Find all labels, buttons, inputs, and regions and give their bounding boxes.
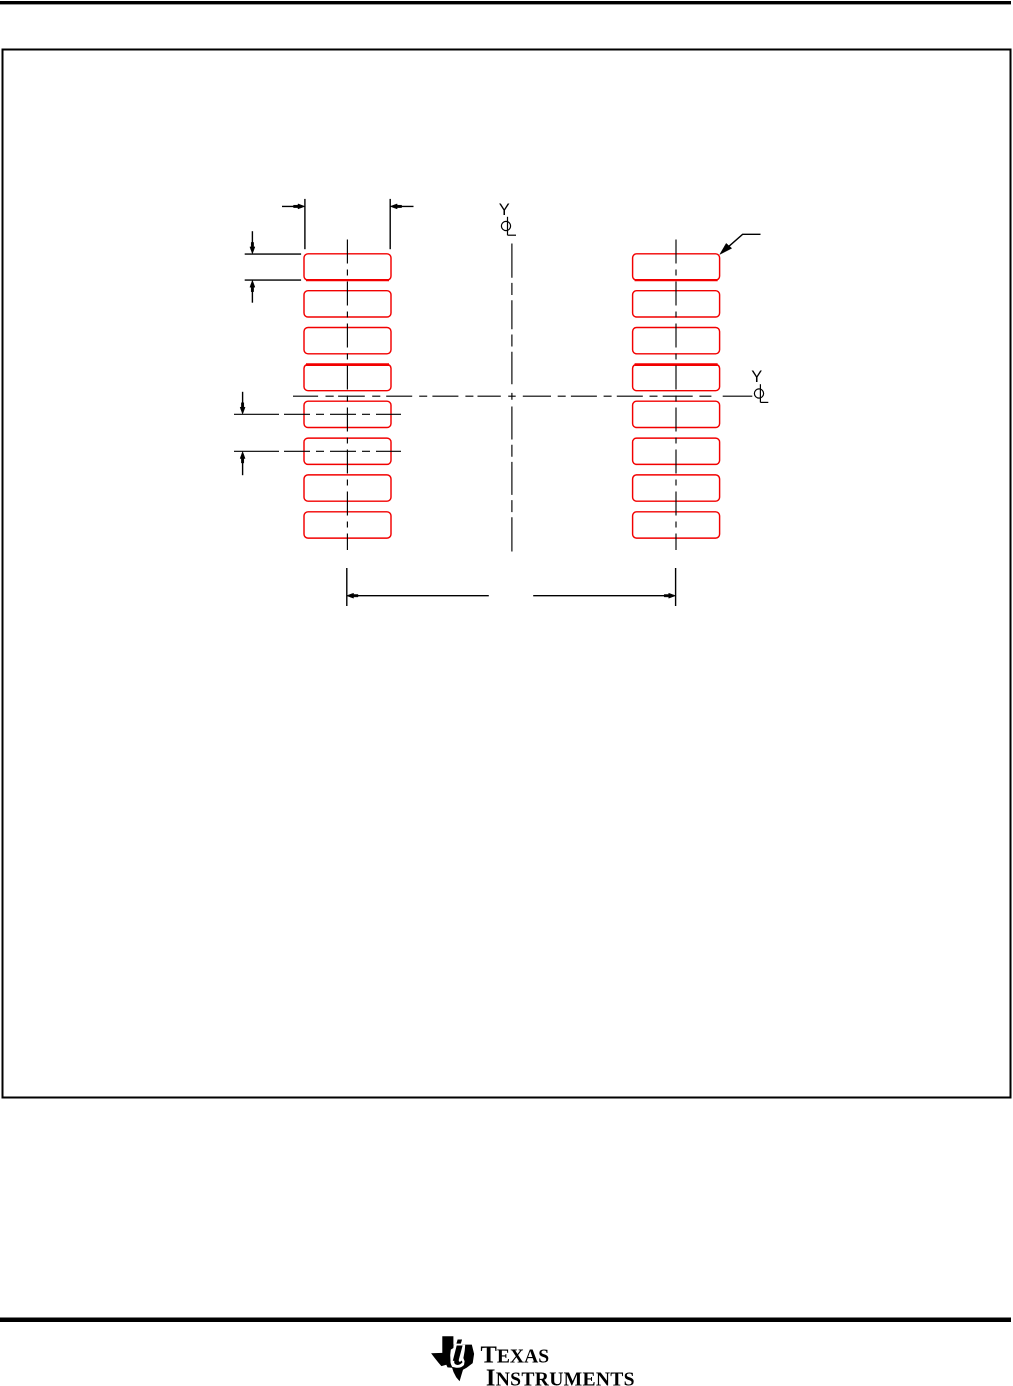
svg-text:INSTRUMENTS: INSTRUMENTS	[486, 1364, 635, 1386]
svg-text:Y: Y	[499, 201, 510, 219]
svg-text:Y: Y	[751, 368, 762, 386]
